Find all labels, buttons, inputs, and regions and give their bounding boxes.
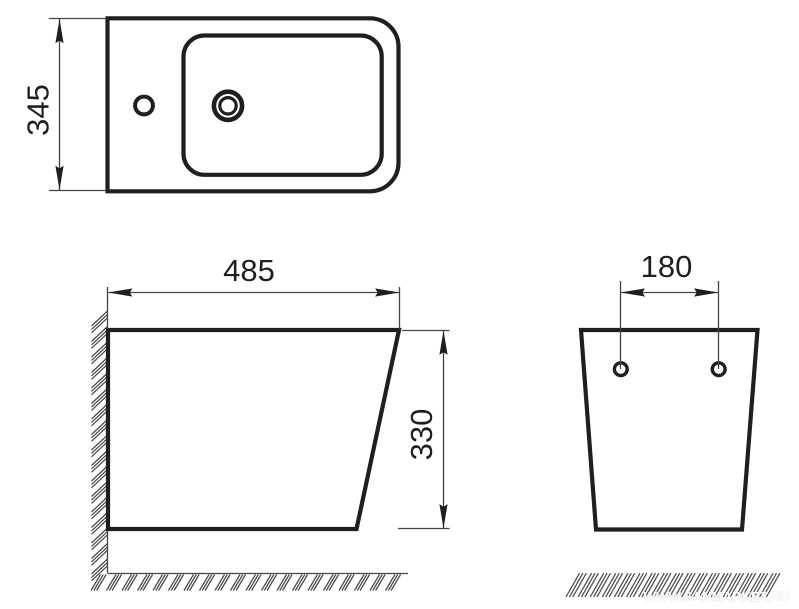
svg-text:WWW.SANMARKET.RU: WWW.SANMARKET.RU (644, 589, 790, 604)
svg-text:345: 345 (21, 84, 56, 136)
svg-text:180: 180 (641, 249, 693, 284)
svg-text:485: 485 (223, 253, 275, 288)
svg-text:330: 330 (404, 409, 439, 461)
